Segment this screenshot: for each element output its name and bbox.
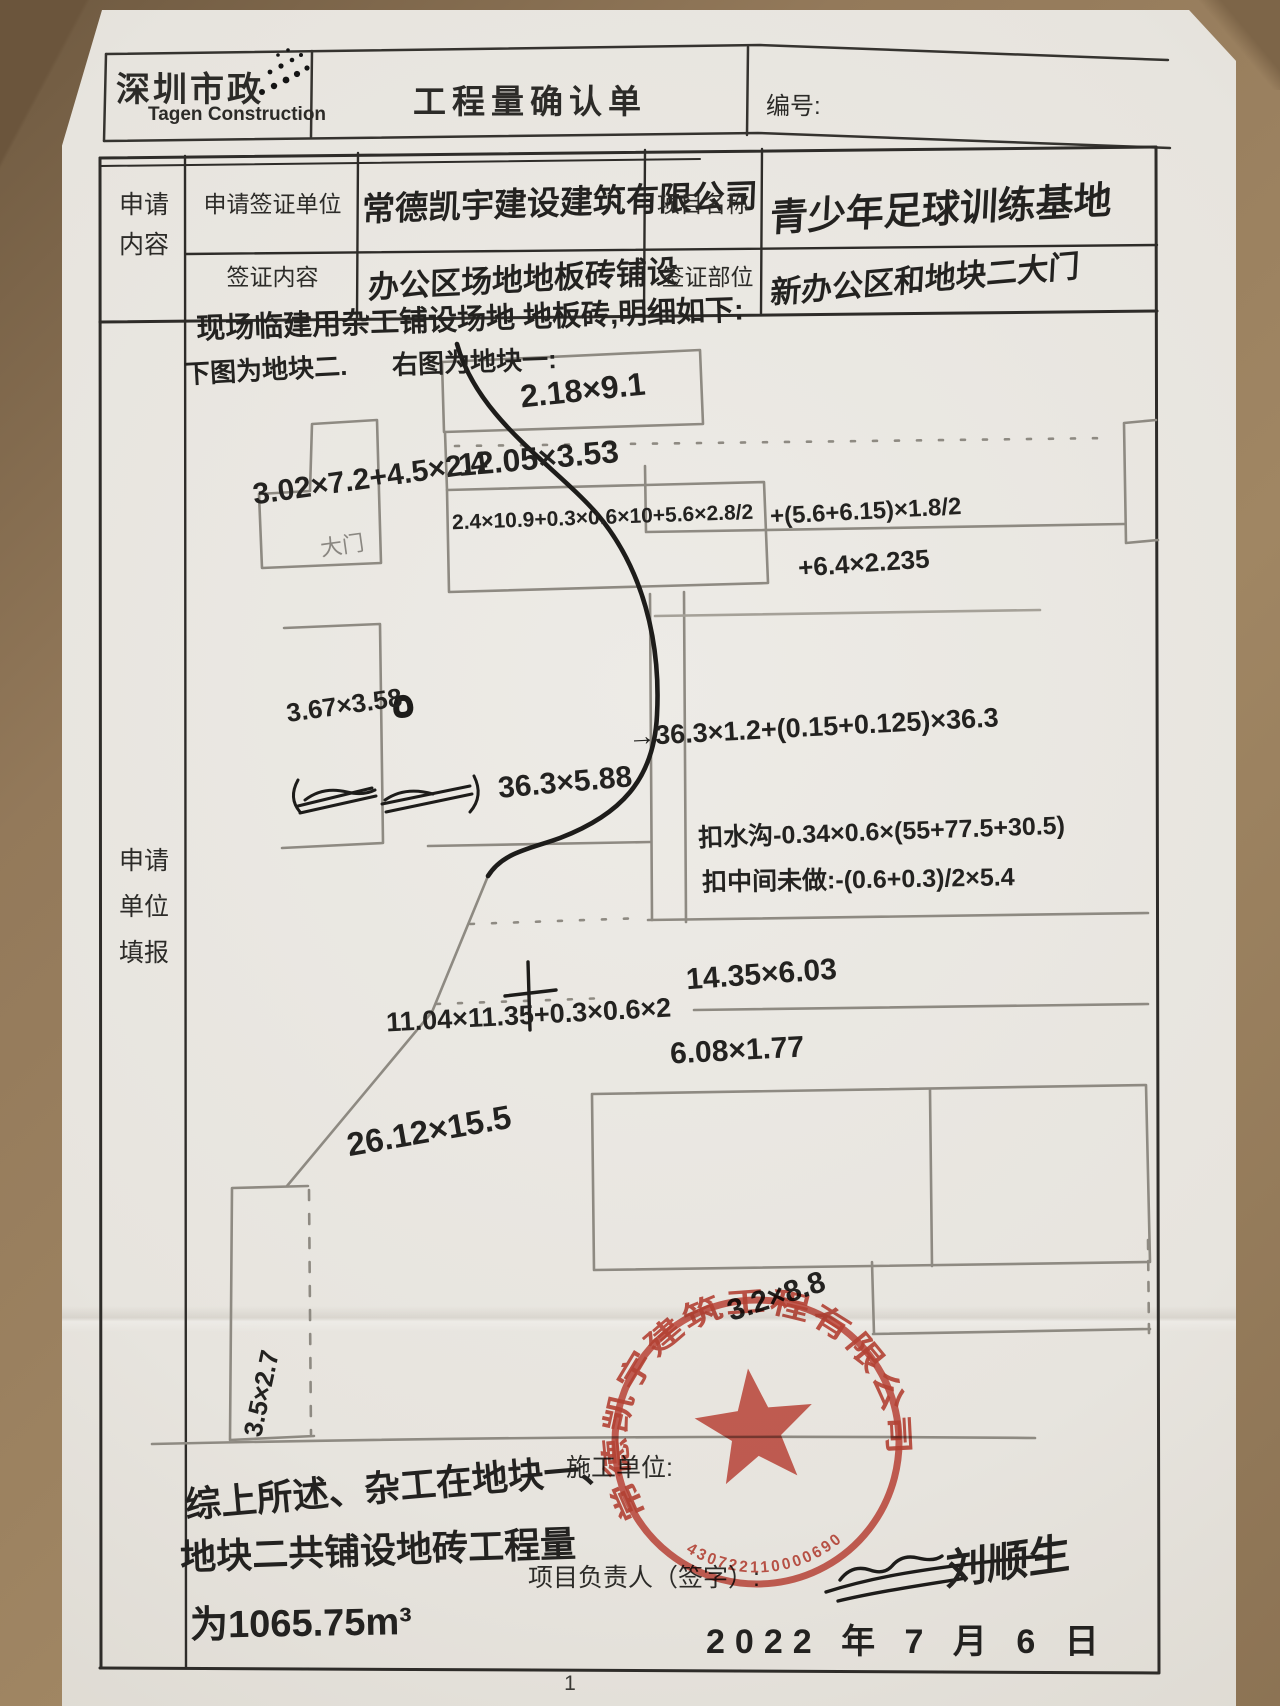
plot1-formula-box — [447, 482, 768, 592]
document-photo: 深圳市政 Tagen Construction 工程量确认单 编号: 申请 内容… — [0, 0, 1280, 1706]
photo-corner-topleft — [0, 0, 130, 180]
date-handwritten: 2022 年 7 月 6 日 — [706, 1614, 1109, 1663]
dim-6.08x1.77: 6.08×1.77 — [669, 1031, 805, 1072]
logo-dots-icon — [259, 48, 310, 95]
company-seal: 常德凯宇建筑工程有限公司 430722110000690 — [573, 1258, 941, 1626]
summary-line3: 为1065.75m³ — [190, 1590, 413, 1649]
header-bottom-border — [104, 133, 1170, 148]
gate-label: 大门 — [318, 525, 366, 563]
photo-corner-topright — [1160, 0, 1280, 90]
deduction-middle: 扣中间未做:-(0.6+0.3)/2×5.4 — [702, 857, 1015, 898]
crossed-out-scribble — [293, 776, 478, 813]
row2-label: 签证内容 — [195, 258, 350, 292]
row1-label: 申请签证单位 — [195, 185, 350, 219]
section-label-applicant-fill: 申请 单位 填报 — [113, 838, 175, 976]
row1-label2: 项目名称 — [648, 185, 758, 219]
logo-text-en: Tagen Construction — [148, 104, 326, 126]
section-label-application: 申请 内容 — [113, 185, 175, 265]
plot1-notch — [1124, 420, 1158, 543]
plot2-rect — [282, 624, 383, 848]
page-number: 1 — [550, 1672, 590, 1696]
seal-star-icon — [689, 1361, 820, 1487]
sketch-right-caption: 右图为地块一: — [391, 339, 557, 382]
serial-label: 编号: — [766, 86, 821, 121]
header-top-border — [106, 45, 1168, 60]
plot1-bottom-rect — [592, 1085, 1150, 1270]
page-title: 工程量确认单 — [330, 75, 730, 123]
